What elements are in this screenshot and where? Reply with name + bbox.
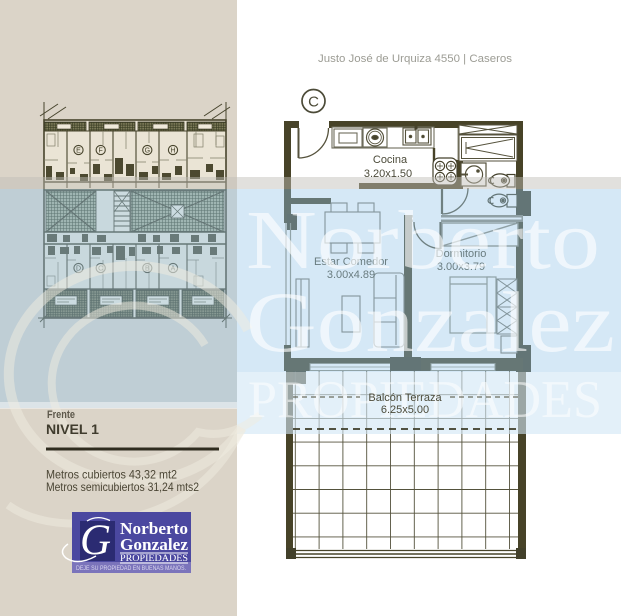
svg-text:Frente: Frente [47, 409, 75, 421]
svg-text:F: F [99, 148, 103, 155]
svg-text:Gonzalez: Gonzalez [120, 535, 188, 554]
svg-text:Justo José de Urquiza 4550 |: Justo José de Urquiza 4550 | Caseros [318, 53, 513, 65]
svg-text:H: H [170, 148, 175, 155]
svg-text:DEJE SU PROPIEDAD EN BUENAS MA: DEJE SU PROPIEDAD EN BUENAS MANOS. [76, 566, 186, 572]
svg-text:Gonzalez: Gonzalez [246, 274, 615, 370]
svg-text:C: C [308, 94, 319, 111]
svg-text:6.25x5.00: 6.25x5.00 [381, 404, 429, 416]
svg-text:G: G [145, 148, 150, 155]
svg-text:E: E [76, 148, 81, 155]
svg-text:Cocina: Cocina [373, 154, 408, 166]
svg-text:Metros semicubiertos 31,24 mts: Metros semicubiertos 31,24 mts2 [46, 480, 199, 494]
svg-text:Balcón Terraza: Balcón Terraza [368, 392, 442, 404]
svg-text:PROPIEDADES: PROPIEDADES [120, 553, 188, 563]
svg-text:NIVEL 1: NIVEL 1 [46, 421, 99, 437]
